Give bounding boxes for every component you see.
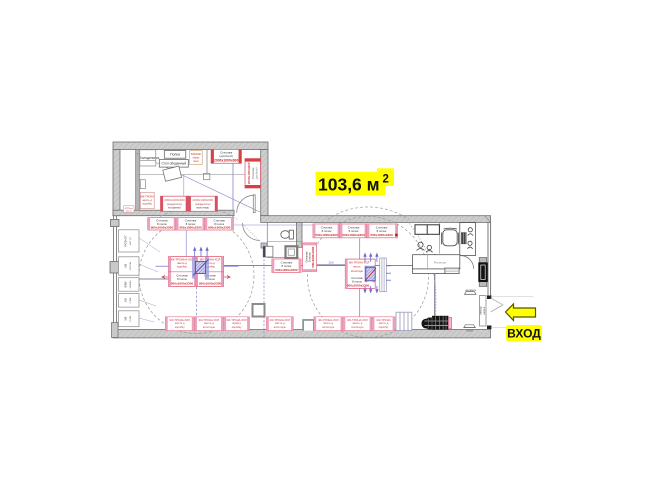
svg-text:2000х1000х600: 2000х1000х600 — [214, 159, 239, 163]
svg-text:коробку: коробку — [175, 325, 185, 329]
svg-text:ВХОД: ВХОД — [507, 327, 541, 341]
svg-text:500х1000х2300: 500х1000х2300 — [311, 246, 315, 267]
svg-text:месте: месте — [126, 211, 133, 213]
svg-text:500х600: 500х600 — [191, 152, 202, 156]
svg-text:ЖК-ТРОНА-ХОЛ: ЖК-ТРОНА-ХОЛ — [349, 260, 370, 264]
svg-text:жесть д: жесть д — [353, 322, 363, 325]
svg-text:Холодильник: Холодильник — [140, 156, 160, 160]
svg-text:стояк: стояк — [129, 296, 132, 303]
svg-text:103,6 м: 103,6 м — [318, 175, 380, 195]
svg-text:2000х1000х600: 2000х1000х600 — [247, 162, 251, 184]
svg-text:(двойной): (двойной) — [219, 154, 233, 158]
svg-text:коробку: коробку — [177, 265, 187, 269]
svg-text:900х1000х2300: 900х1000х2300 — [179, 226, 202, 230]
svg-text:коробку: коробку — [142, 202, 152, 206]
svg-text:широк: широк — [483, 306, 486, 314]
svg-text:вплотную: вплотную — [203, 326, 215, 329]
svg-text:вплотную: вплотную — [197, 206, 209, 210]
svg-text:жесть: жесть — [353, 265, 361, 268]
svg-text:ЖК-ТРОНА-ХОЛ: ЖК-ТРОНА-ХОЛ — [347, 318, 368, 322]
svg-text:Полка: Полка — [170, 153, 180, 157]
svg-text:1500: 1500 — [328, 262, 334, 265]
svg-text:Стол обеденный: Стол обеденный — [161, 162, 186, 166]
svg-text:Ресепшн: Ресепшн — [434, 261, 447, 265]
svg-text:900х1000х2300: 900х1000х2300 — [151, 226, 174, 230]
svg-text:500х1000х2300: 500х1000х2300 — [342, 233, 365, 237]
svg-text:обувь: обувь — [192, 155, 200, 159]
svg-text:ЖК-ТРОНА-ХОЛ: ЖК-ТРОНА-ХОЛ — [200, 258, 221, 262]
svg-text:вплотную: вплотную — [322, 326, 334, 329]
svg-text:500х1000х2300: 500х1000х2300 — [315, 233, 338, 237]
svg-text:ЖК-ТРОНА-А-ХОЛ: ЖК-ТРОНА-А-ХОЛ — [170, 258, 193, 262]
svg-text:РСВ-ОГ: РСВ-ОГ — [124, 235, 128, 246]
svg-text:поло: поло — [193, 160, 199, 163]
svg-text:ЖК-ТРОНА-ХОЛ: ЖК-ТРОНА-ХОЛ — [169, 318, 190, 322]
svg-text:Стеллаж: Стеллаж — [251, 167, 255, 179]
svg-text:ХВ: ХВ — [124, 264, 128, 268]
svg-text:ЖК-ТРОНА-ХОЛ: ЖК-ТРОНА-ХОЛ — [226, 318, 247, 322]
svg-text:стояк: стояк — [129, 315, 132, 322]
svg-text:вплотную: вплотную — [351, 270, 363, 273]
svg-text:жрай д: жрай д — [232, 321, 241, 325]
svg-text:ФВУ: ФВУ — [124, 281, 128, 287]
svg-text:коробку: коробку — [232, 325, 242, 329]
svg-text:жесть д: жесть д — [175, 322, 185, 325]
svg-text:ЖК-ТРОНА: ЖК-ТРОНА — [140, 195, 154, 199]
svg-text:жесть д: жесть д — [379, 322, 389, 325]
svg-text:500х1000х2300: 500х1000х2300 — [199, 281, 222, 285]
svg-text:лавка: лавка — [466, 329, 474, 332]
svg-text:вплотную: вплотную — [274, 326, 286, 329]
svg-text:жесть д: жесть д — [275, 322, 285, 325]
svg-text:500х1000х2300: 500х1000х2300 — [275, 268, 298, 272]
svg-text:клапан: клапан — [129, 280, 132, 288]
svg-text:ЖК-ТРОНА-ХОЛ: ЖК-ТРОНА-ХОЛ — [270, 318, 291, 322]
svg-text:коробку: коробку — [379, 325, 389, 329]
svg-text:щит уч.: щит уч. — [129, 236, 132, 245]
svg-text:ЖК-ТРОНА: ЖК-ТРОНА — [376, 318, 390, 322]
svg-text:вплотную: вплотную — [351, 326, 363, 329]
svg-text:ХВ: ХВ — [124, 317, 128, 321]
svg-text:жесть д: жесть д — [324, 322, 334, 325]
svg-text:в (прием): в (прием) — [168, 206, 180, 210]
svg-text:500х1000х2300: 500х1000х2300 — [347, 284, 370, 288]
svg-text:жесть д: жесть д — [204, 322, 214, 325]
svg-text:500х1000х2300: 500х1000х2300 — [370, 233, 393, 237]
svg-text:(двойной): (двойной) — [255, 167, 259, 179]
svg-text:ЖК-ТРОНА-ХОЛ: ЖК-ТРОНА-ХОЛ — [199, 318, 220, 322]
svg-text:900х1000х2300: 900х1000х2300 — [208, 226, 231, 230]
svg-text:500х1000х2300: 500х1000х2300 — [171, 281, 194, 285]
svg-text:счетчик: счетчик — [129, 261, 132, 270]
svg-text:2: 2 — [383, 174, 389, 186]
svg-text:ХВ: ХВ — [124, 298, 128, 302]
svg-text:ЖК-ТРОНА-ХОЛ: ЖК-ТРОНА-ХОЛ — [318, 318, 339, 322]
